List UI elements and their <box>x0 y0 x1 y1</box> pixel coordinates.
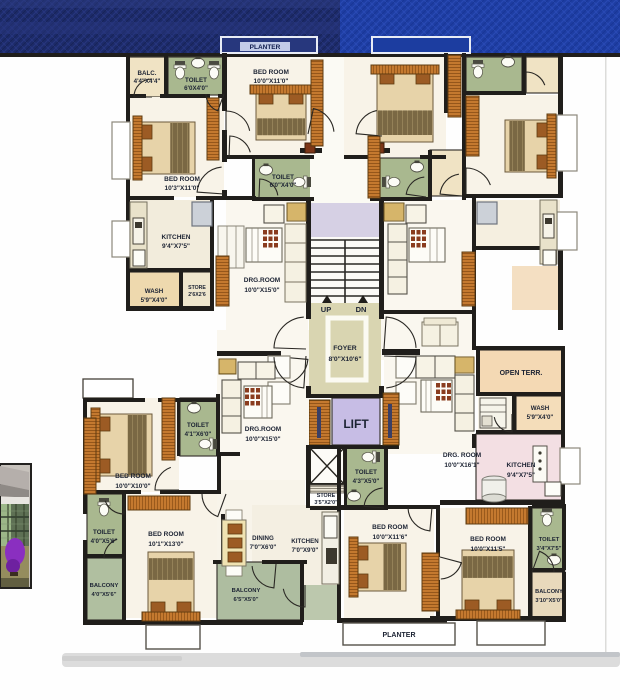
svg-text:5'9"X4'0": 5'9"X4'0" <box>527 414 554 421</box>
svg-text:KITCHEN: KITCHEN <box>162 234 191 241</box>
svg-text:10'0"X15'0": 10'0"X15'0" <box>245 436 280 443</box>
svg-text:PLANTER: PLANTER <box>382 632 415 639</box>
svg-text:BED ROOM: BED ROOM <box>115 473 151 480</box>
svg-text:10'0"X16'1": 10'0"X16'1" <box>444 462 479 469</box>
svg-text:BED ROOM: BED ROOM <box>372 524 408 531</box>
svg-text:WASH: WASH <box>531 405 550 412</box>
svg-text:TOILET: TOILET <box>272 174 294 181</box>
svg-text:10'0"X10'0": 10'0"X10'0" <box>115 483 150 490</box>
svg-text:5'9"X4'0": 5'9"X4'0" <box>141 297 168 304</box>
svg-text:10'0"X11'5": 10'0"X11'5" <box>471 546 506 553</box>
svg-text:3'4"X7'5": 3'4"X7'5" <box>536 546 561 552</box>
svg-text:KITCHEN: KITCHEN <box>291 538 319 545</box>
svg-text:DN: DN <box>356 305 367 314</box>
svg-text:10'1"X13'0": 10'1"X13'0" <box>148 541 183 548</box>
svg-text:6'5"X5'0": 6'5"X5'0" <box>233 597 258 603</box>
svg-text:10'0"X11'0": 10'0"X11'0" <box>254 78 289 85</box>
svg-text:9'4"X7'5": 9'4"X7'5" <box>162 243 190 250</box>
svg-text:TOILET: TOILET <box>185 77 207 84</box>
svg-text:FOYER: FOYER <box>333 345 357 352</box>
svg-text:10'3"X11'0": 10'3"X11'0" <box>165 185 200 192</box>
svg-text:TOILET: TOILET <box>355 469 377 476</box>
svg-text:6'0X4'0": 6'0X4'0" <box>184 85 208 92</box>
svg-text:8'0"X10'6": 8'0"X10'6" <box>328 356 361 363</box>
svg-text:2'6X2'6: 2'6X2'6 <box>188 292 206 298</box>
svg-text:DRG. ROOM: DRG. ROOM <box>443 452 481 459</box>
svg-text:BED ROOM: BED ROOM <box>253 69 289 76</box>
svg-text:10'0"X15'0": 10'0"X15'0" <box>244 287 279 294</box>
svg-text:STORE: STORE <box>188 285 206 291</box>
svg-text:PLANTER: PLANTER <box>250 44 281 51</box>
svg-text:STORE: STORE <box>317 493 336 499</box>
svg-text:4'0"X5'6": 4'0"X5'6" <box>91 592 116 598</box>
svg-text:4'3"X5'0": 4'3"X5'0" <box>353 478 380 485</box>
svg-text:BED ROOM: BED ROOM <box>148 531 184 538</box>
svg-text:4'0"X5'6": 4'0"X5'6" <box>91 538 118 545</box>
svg-text:TOILET: TOILET <box>187 422 209 429</box>
svg-text:OPEN TERR.: OPEN TERR. <box>500 370 543 377</box>
svg-text:WASH: WASH <box>145 288 164 295</box>
svg-text:7'0"X6'0": 7'0"X6'0" <box>250 544 277 551</box>
svg-text:6'0"X4'0": 6'0"X4'0" <box>270 182 297 189</box>
svg-text:DRG.ROOM: DRG.ROOM <box>245 426 281 433</box>
svg-text:BALCONY: BALCONY <box>90 583 119 589</box>
svg-text:UP: UP <box>321 305 331 314</box>
svg-text:4'4"X4'4": 4'4"X4'4" <box>134 78 161 85</box>
svg-text:TOILET: TOILET <box>93 529 115 536</box>
svg-text:DINING: DINING <box>252 535 274 542</box>
svg-text:7'0"X9'0": 7'0"X9'0" <box>292 547 319 554</box>
svg-text:3'10"X5'0": 3'10"X5'0" <box>535 598 563 604</box>
svg-text:BALC.: BALC. <box>138 70 157 77</box>
svg-text:BALCONY: BALCONY <box>232 588 261 594</box>
svg-text:TOILET: TOILET <box>539 537 560 543</box>
svg-text:BED ROOM: BED ROOM <box>470 536 506 543</box>
svg-text:9'4"X7'5": 9'4"X7'5" <box>507 472 535 479</box>
svg-text:BALCONY: BALCONY <box>535 589 563 595</box>
svg-text:KITCHEN: KITCHEN <box>507 462 536 469</box>
svg-text:10'0"X11'6": 10'0"X11'6" <box>373 534 408 541</box>
svg-text:DRG.ROOM: DRG.ROOM <box>244 277 280 284</box>
svg-text:BED ROOM: BED ROOM <box>164 176 200 183</box>
svg-text:LIFT: LIFT <box>343 417 369 431</box>
svg-text:4'1"X6'0": 4'1"X6'0" <box>185 431 212 438</box>
